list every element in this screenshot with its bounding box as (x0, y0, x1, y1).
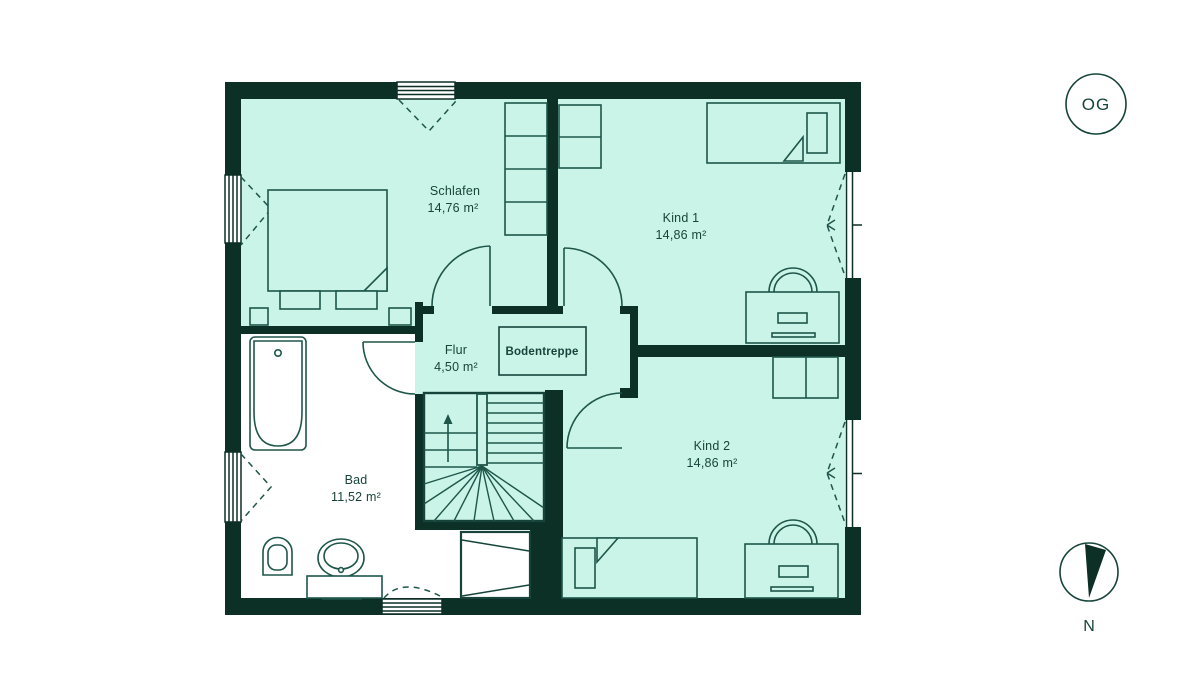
wall-schlafen-bad (241, 326, 423, 334)
single-bed-kind2 (562, 538, 697, 598)
room-area: 4,50 m² (434, 360, 478, 374)
nightstand-right (389, 308, 411, 325)
bed-pillow-right (336, 291, 377, 309)
compass-needle (1085, 544, 1106, 598)
nightstand-left (250, 308, 268, 325)
wall-mass-southcenter (530, 530, 563, 598)
bath-counter (307, 576, 382, 598)
floorplan-drawing: Bodentreppe (0, 0, 1200, 700)
wall-flur-right (630, 306, 638, 398)
room-name: Schlafen (430, 184, 480, 198)
room-name: Flur (445, 343, 467, 357)
room-area: 14,86 m² (656, 228, 707, 242)
window-bottom-bad (382, 599, 442, 614)
window-right-kind1 (845, 172, 862, 278)
shelf-kind2 (773, 357, 838, 398)
window-right-kind2 (845, 420, 862, 527)
window-left-bad (225, 452, 241, 522)
compass-icon: N (1060, 543, 1118, 635)
staircase (424, 393, 544, 521)
window-left-schlafen (225, 175, 241, 243)
dresser-kind1 (559, 105, 601, 168)
bed-pillow-left (280, 291, 320, 309)
badge-label: OG (1082, 95, 1110, 114)
floorplan-page: Bodentreppe (0, 0, 1200, 700)
basin-drain (339, 568, 344, 573)
room-area: 14,86 m² (687, 456, 738, 470)
room-area: 11,52 m² (331, 490, 381, 504)
room-name: Kind 1 (663, 211, 700, 225)
pillow (807, 113, 827, 153)
tub-drain (275, 350, 281, 356)
wall-schlafen-kind1 (547, 99, 558, 306)
laptop (779, 566, 808, 577)
window-top-schlafen (397, 82, 455, 99)
room-area: 14,76 m² (428, 201, 479, 215)
laptop (778, 313, 807, 323)
room-name: Kind 2 (694, 439, 731, 453)
closet-understairs (461, 532, 530, 598)
stair-center-string (477, 394, 487, 465)
north-label: N (1083, 618, 1095, 635)
room-name: Bad (345, 473, 368, 487)
bathtub (250, 337, 306, 450)
desk-tray (771, 587, 813, 591)
desk-tray (772, 333, 815, 337)
wardrobe (505, 103, 547, 235)
floor-badge: OG (1066, 74, 1126, 134)
pillow (575, 548, 595, 588)
wall-bad-east-lower (415, 394, 423, 530)
attic-stairs-box: Bodentreppe (499, 327, 586, 375)
wall-kind1-kind2 (638, 345, 845, 357)
toilet (263, 538, 292, 576)
single-bed-kind1 (707, 103, 840, 163)
wall-flur-flange-bottom (620, 388, 638, 398)
attic-stairs-label: Bodentreppe (505, 346, 578, 358)
wall-stair-bottom (423, 522, 545, 530)
wall-flur-top (492, 306, 563, 314)
wall-bad-east-upper (415, 302, 423, 342)
